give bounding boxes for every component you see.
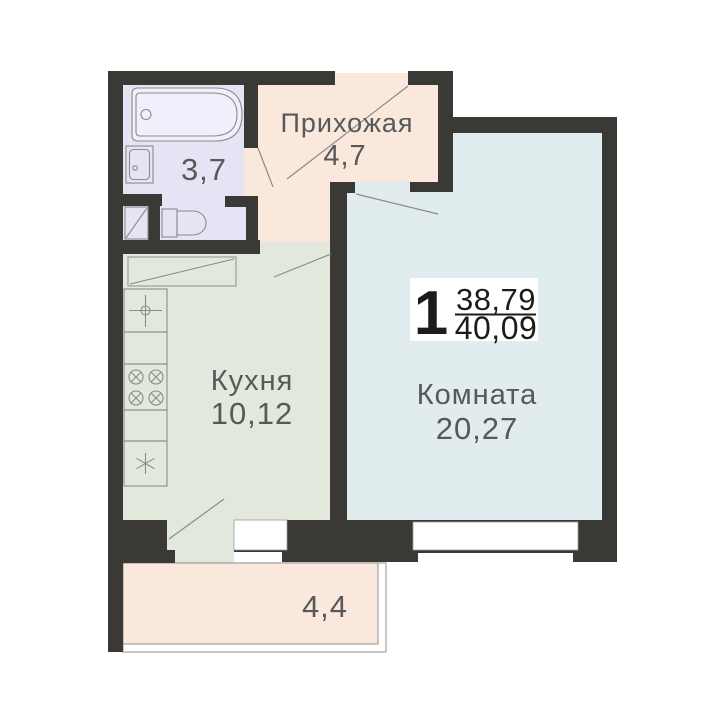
living-room-area: 20,27: [436, 411, 519, 446]
wall-top-left: [108, 71, 335, 85]
area-badge: 1 38,79 40,09: [410, 278, 538, 348]
living-room-label: Комната: [417, 379, 538, 411]
hallway-area: 4,7: [323, 140, 366, 172]
badge-area-total: 40,09: [455, 310, 538, 346]
kitchen-window-sill: [234, 552, 282, 562]
wall-bathroom-stub-left: [123, 194, 162, 206]
balcony-area: 4,4: [302, 589, 348, 624]
kitchen-label: Кухня: [211, 365, 294, 397]
kitchen-area: 10,12: [211, 396, 294, 431]
closet: [128, 257, 236, 286]
wall-kitchen-sill-end: [282, 552, 287, 562]
wall-room-right: [602, 117, 617, 562]
wall-bathroom-right-lower: [246, 207, 258, 240]
bathtub: [132, 88, 242, 141]
bathtub-outline: [132, 88, 242, 141]
floor-plan-page: Прихожая 4,7 3,7 Кухня 10,12 Комната 20,…: [0, 0, 726, 726]
wall-bathroom-right-upper: [244, 85, 258, 148]
wall-room-top: [453, 117, 617, 133]
wall-bathroom-stub-right: [225, 196, 258, 207]
wall-left: [108, 71, 123, 652]
kitchen-window: [234, 520, 287, 550]
bathroom-area: 3,7: [181, 152, 227, 187]
room-window-sill: [418, 553, 573, 562]
floor-plan: Прихожая 4,7 3,7 Кухня 10,12 Комната 20,…: [0, 0, 726, 726]
wall-washer-nook: [148, 206, 160, 240]
wall-hallway-right: [438, 71, 453, 192]
wall-bathroom-bottom: [108, 240, 260, 254]
badge-rooms-count: 1: [414, 279, 448, 348]
room-window: [413, 522, 578, 550]
hallway-label: Прихожая: [280, 108, 413, 138]
badge-numbers: 1 38,79 40,09: [414, 279, 538, 348]
wall-room-door-pier: [410, 182, 438, 192]
